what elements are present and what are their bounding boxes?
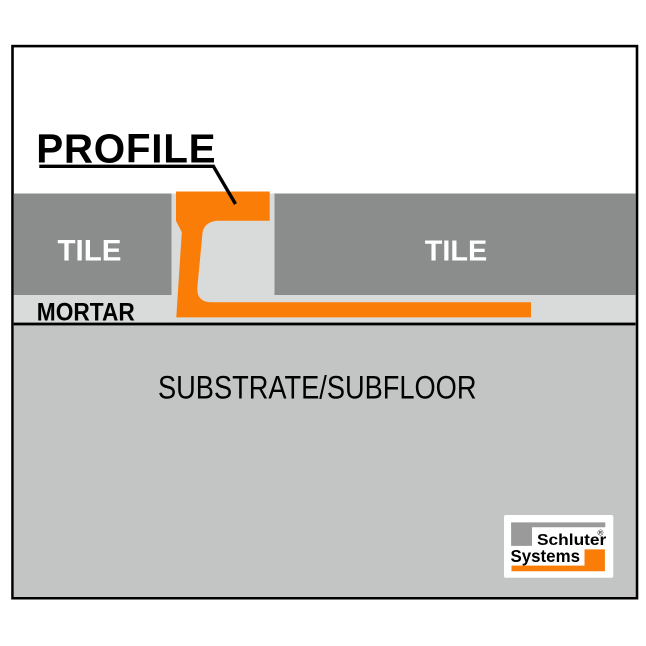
- svg-text:TILE: TILE: [425, 235, 487, 267]
- svg-text:Systems: Systems: [511, 546, 581, 566]
- svg-text:SUBSTRATE/SUBFLOOR: SUBSTRATE/SUBFLOOR: [158, 369, 477, 405]
- svg-text:TILE: TILE: [58, 234, 122, 267]
- svg-text:®: ®: [598, 529, 604, 538]
- svg-text:PROFILE: PROFILE: [36, 125, 216, 171]
- svg-text:MORTAR: MORTAR: [37, 299, 135, 327]
